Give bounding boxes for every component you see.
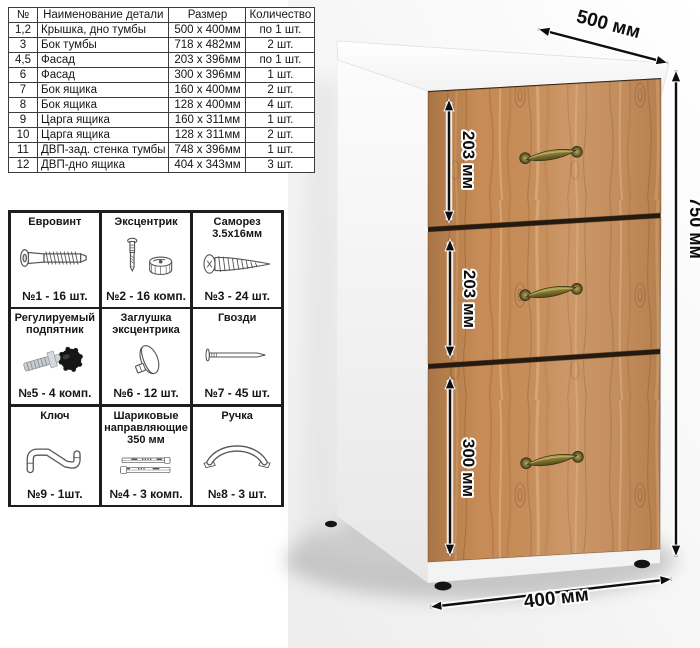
- hardware-cell-handle: Ручка №8 - 3 шт.: [193, 407, 282, 505]
- cell-qty: 1 шт.: [246, 68, 315, 83]
- parts-table-header-row: № Наименование детали Размер Количество: [9, 8, 315, 23]
- cell-num: 7: [9, 83, 38, 98]
- cell-num: 3: [9, 38, 38, 53]
- cell-num: 9: [9, 113, 38, 128]
- cell-size: 160 х 400мм: [169, 83, 246, 98]
- table-row: 6 Фасад 300 х 396мм 1 шт.: [9, 68, 315, 83]
- hardware-title: Ручка: [219, 407, 254, 422]
- table-row: 1,2 Крышка, дно тумбы 500 х 400мм по 1 ш…: [9, 23, 315, 38]
- table-row: 8 Бок ящика 128 х 400мм 4 шт.: [9, 98, 315, 113]
- cell-name: ДВП-зад. стенка тумбы: [38, 143, 169, 158]
- hardware-title: Шариковые направляющие 350 мм: [102, 407, 191, 447]
- cell-qty: 3 шт.: [246, 158, 315, 173]
- hardware-cell-slides: Шариковые направляющие 350 мм №4 - 3: [102, 407, 191, 505]
- hardware-qty: №4 - 3 комп.: [109, 487, 182, 505]
- cell-name: Крышка, дно тумбы: [38, 23, 169, 38]
- hardware-cell-key: Ключ №9 - 1шт.: [11, 407, 100, 505]
- table-row: 12 ДВП-дно ящика 404 х 343мм 3 шт.: [9, 158, 315, 173]
- hardware-cell-foot: Регулируемый подпятник: [11, 309, 100, 404]
- hardware-cell-eurowint: Евровинт №1 - 16 шт.: [11, 213, 100, 307]
- cabinet-side-panel: [337, 60, 428, 583]
- hardware-cell-cam-lock: Эксцентрик: [102, 213, 191, 307]
- self-tapping-screw-icon: [193, 240, 282, 288]
- cell-qty: по 1 шт.: [246, 53, 315, 68]
- hardware-cell-cam-cover: Заглушка эксцентрика №6 - 12 шт.: [102, 309, 191, 404]
- hex-key-icon: [11, 422, 100, 487]
- cell-num: 12: [9, 158, 38, 173]
- hardware-cell-screw: Саморез 3.5х16мм №3 - 24 шт.: [193, 213, 282, 307]
- cell-qty: 2 шт.: [246, 128, 315, 143]
- cell-num: 1,2: [9, 23, 38, 38]
- hardware-qty: №7 - 45 шт.: [204, 386, 270, 404]
- cell-qty: 2 шт.: [246, 83, 315, 98]
- handle-icon: [193, 422, 282, 487]
- cell-size: 748 х 396мм: [169, 143, 246, 158]
- cell-size: 203 х 396мм: [169, 53, 246, 68]
- hardware-title: Евровинт: [26, 213, 83, 228]
- cell-name: Царга ящика: [38, 128, 169, 143]
- drawer2-label: 203 мм: [460, 270, 479, 328]
- cam-lock-icon: [102, 228, 191, 289]
- cell-name: Фасад: [38, 53, 169, 68]
- table-row: 7 Бок ящика 160 х 400мм 2 шт.: [9, 83, 315, 98]
- cell-size: 128 х 400мм: [169, 98, 246, 113]
- hardware-grid: Евровинт №1 - 16 шт. Эксцентрик: [8, 210, 284, 507]
- cell-num: 6: [9, 68, 38, 83]
- cell-size: 718 х 482мм: [169, 38, 246, 53]
- cell-size: 404 х 343мм: [169, 158, 246, 173]
- hardware-title: Саморез 3.5х16мм: [193, 213, 282, 241]
- cell-num: 10: [9, 128, 38, 143]
- nail-icon: [193, 324, 282, 386]
- cell-qty: по 1 шт.: [246, 23, 315, 38]
- table-row: 10 Царга ящика 128 х 311мм 2 шт.: [9, 128, 315, 143]
- cell-name: Бок тумбы: [38, 38, 169, 53]
- table-row: 9 Царга ящика 160 х 311мм 1 шт.: [9, 113, 315, 128]
- hardware-title: Ключ: [38, 407, 71, 422]
- hardware-title: Эксцентрик: [112, 213, 179, 228]
- cell-num: 11: [9, 143, 38, 158]
- header-qty: Количество: [246, 8, 315, 23]
- cell-size: 160 х 311мм: [169, 113, 246, 128]
- assembly-sheet: 500 мм 750 мм 400 мм 203 мм 203 мм 300 м…: [0, 0, 700, 648]
- table-row: 4,5 Фасад 203 х 396мм по 1 шт.: [9, 53, 315, 68]
- hardware-qty: №9 - 1шт.: [27, 487, 83, 505]
- hardware-qty: №1 - 16 шт.: [22, 289, 88, 307]
- hardware-qty: №8 - 3 шт.: [208, 487, 267, 505]
- cell-size: 500 х 400мм: [169, 23, 246, 38]
- cell-name: ДВП-дно ящика: [38, 158, 169, 173]
- header-size: Размер: [169, 8, 246, 23]
- cell-name: Бок ящика: [38, 83, 169, 98]
- height-label: 750 мм: [686, 197, 700, 259]
- table-row: 11 ДВП-зад. стенка тумбы 748 х 396мм 1 ш…: [9, 143, 315, 158]
- cell-num: 8: [9, 98, 38, 113]
- hardware-cell-nails: Гвозди №7 - 45 шт.: [193, 309, 282, 404]
- hardware-qty: №5 - 4 комп.: [18, 386, 91, 404]
- cell-qty: 1 шт.: [246, 143, 315, 158]
- hardware-title: Гвозди: [216, 309, 258, 324]
- ball-slides-icon: [102, 446, 191, 486]
- hardware-qty: №2 - 16 комп.: [106, 289, 186, 307]
- euro-screw-icon: [11, 228, 100, 289]
- hardware-title: Регулируемый подпятник: [11, 309, 100, 337]
- table-row: 3 Бок тумбы 718 х 482мм 2 шт.: [9, 38, 315, 53]
- cell-name: Фасад: [38, 68, 169, 83]
- parts-table: № Наименование детали Размер Количество …: [8, 7, 315, 173]
- cell-qty: 1 шт.: [246, 113, 315, 128]
- drawer3-label: 300 мм: [459, 439, 478, 497]
- cell-num: 4,5: [9, 53, 38, 68]
- cell-size: 128 х 311мм: [169, 128, 246, 143]
- adjustable-foot-icon: [11, 337, 100, 386]
- header-num: №: [9, 8, 38, 23]
- cell-qty: 4 шт.: [246, 98, 315, 113]
- cell-name: Царга ящика: [38, 113, 169, 128]
- header-name: Наименование детали: [38, 8, 169, 23]
- cell-qty: 2 шт.: [246, 38, 315, 53]
- hardware-qty: №6 - 12 шт.: [113, 386, 179, 404]
- cell-name: Бок ящика: [38, 98, 169, 113]
- cell-size: 300 х 396мм: [169, 68, 246, 83]
- hardware-title: Заглушка эксцентрика: [102, 309, 191, 337]
- cam-cover-icon: [102, 337, 191, 386]
- hardware-qty: №3 - 24 шт.: [204, 289, 270, 307]
- drawer1-label: 203 мм: [459, 131, 478, 189]
